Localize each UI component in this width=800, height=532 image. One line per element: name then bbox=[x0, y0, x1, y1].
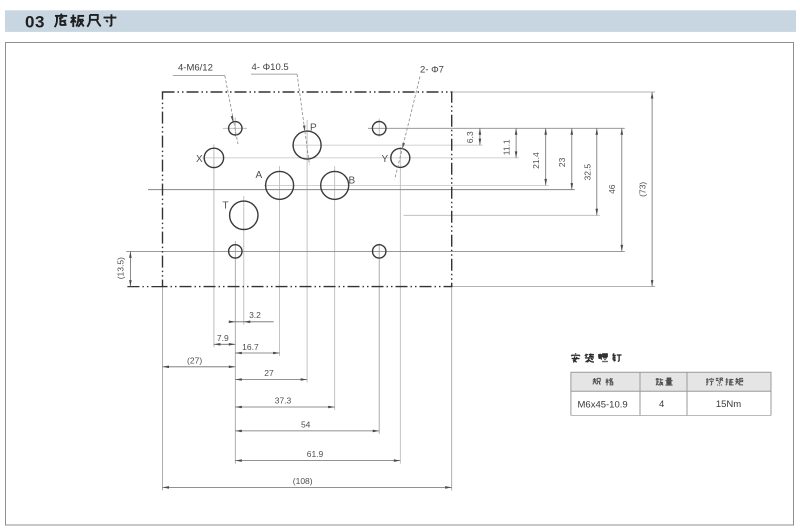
svg-text:T: T bbox=[223, 201, 229, 212]
svg-text:21.4: 21.4 bbox=[531, 152, 541, 169]
svg-text:7.9: 7.9 bbox=[217, 333, 229, 343]
svg-text:27: 27 bbox=[264, 368, 274, 378]
svg-text:61.9: 61.9 bbox=[307, 449, 324, 459]
svg-text:2- Φ7: 2- Φ7 bbox=[420, 65, 444, 76]
svg-text:(27): (27) bbox=[187, 355, 202, 365]
svg-text:Y: Y bbox=[382, 154, 389, 165]
svg-text:23: 23 bbox=[557, 157, 567, 167]
svg-text:4: 4 bbox=[659, 399, 664, 410]
svg-text:(13.5): (13.5) bbox=[116, 257, 126, 279]
svg-text:B: B bbox=[349, 176, 356, 187]
svg-text:11.1: 11.1 bbox=[501, 139, 511, 155]
svg-text:(73): (73) bbox=[637, 182, 647, 197]
svg-text:37.3: 37.3 bbox=[275, 396, 292, 406]
svg-text:6.3: 6.3 bbox=[465, 131, 475, 143]
svg-text:32.5: 32.5 bbox=[582, 164, 592, 181]
svg-text:15Nm: 15Nm bbox=[716, 399, 741, 410]
svg-text:54: 54 bbox=[301, 420, 311, 430]
svg-text:3.2: 3.2 bbox=[249, 310, 261, 320]
svg-text:4- Φ10.5: 4- Φ10.5 bbox=[252, 62, 289, 73]
svg-text:03: 03 bbox=[25, 12, 45, 31]
svg-text:(108): (108) bbox=[293, 476, 313, 486]
svg-text:P: P bbox=[310, 123, 317, 134]
svg-text:M6x45-10.9: M6x45-10.9 bbox=[578, 399, 628, 410]
svg-text:16.7: 16.7 bbox=[242, 342, 259, 352]
svg-text:4-M6/12: 4-M6/12 bbox=[178, 63, 213, 74]
svg-text:A: A bbox=[256, 170, 263, 181]
svg-text:X: X bbox=[196, 154, 203, 165]
svg-text:46: 46 bbox=[607, 184, 617, 194]
